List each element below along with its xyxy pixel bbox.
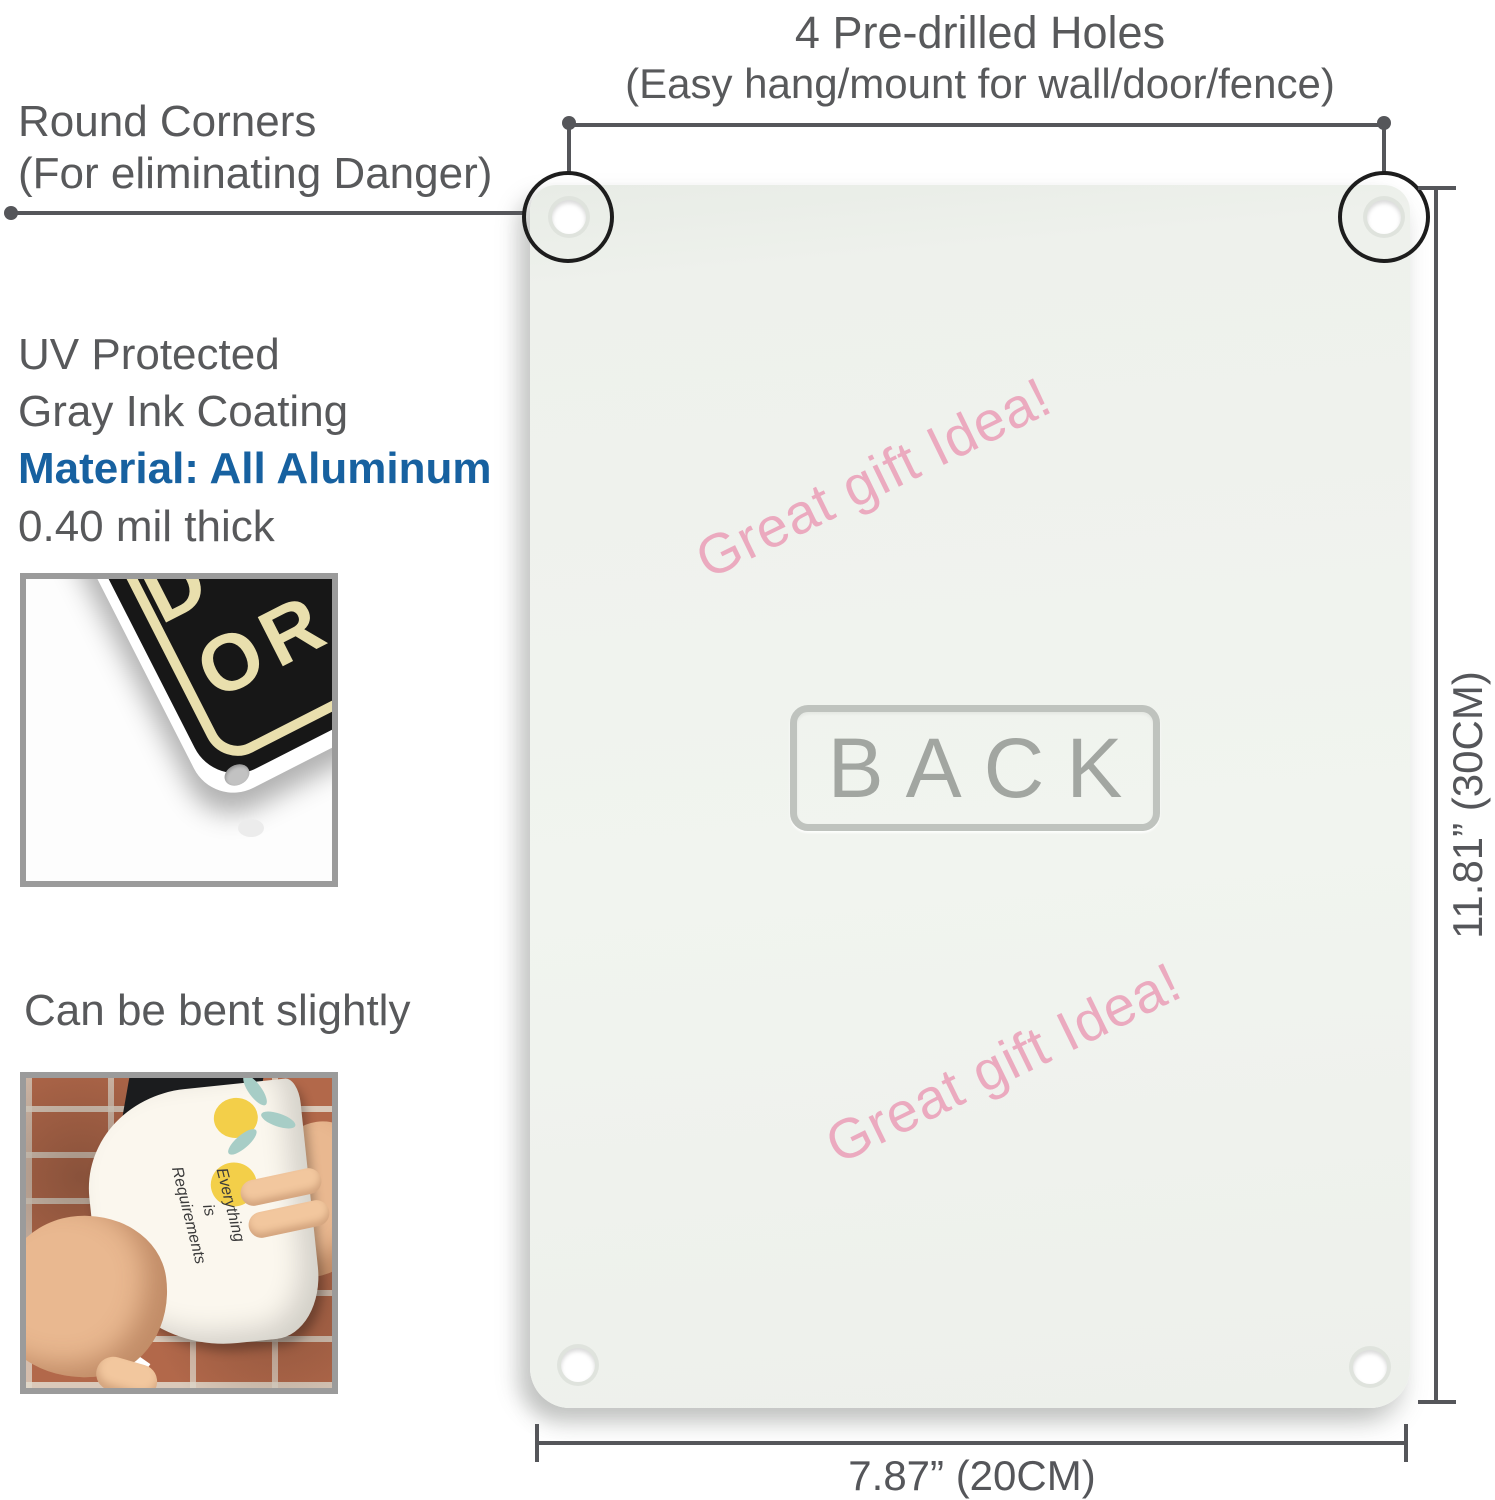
round-corner-pointer-line	[10, 211, 523, 215]
predrilled-holes-subtitle: (Easy hang/mount for wall/door/fence)	[500, 59, 1460, 109]
round-corners-title: Round Corners	[18, 96, 492, 148]
drilled-hole-reflection	[238, 819, 264, 837]
watermark-top: Great gift Idea!	[685, 364, 1061, 592]
bend-demo-photo: Everything is Requirements	[20, 1072, 338, 1394]
gray-ink-line: Gray Ink Coating	[18, 383, 491, 440]
black-sign-corner: D OR R	[20, 573, 338, 789]
top-bracket-drop-left	[567, 127, 571, 173]
height-dimension-label: 11.81” (30CM)	[1444, 671, 1492, 939]
uv-protected-line: UV Protected	[18, 326, 491, 383]
watermark-bottom: Great gift Idea!	[815, 949, 1191, 1177]
material-line: Material: All Aluminum	[18, 440, 491, 497]
brick-wall-background: Everything is Requirements	[26, 1078, 332, 1388]
leaf-illustration	[259, 1108, 297, 1132]
sign-panel-back: Great gift Idea! Great gift Idea! BACK	[530, 185, 1410, 1408]
handwritten-text: Everything is Requirements	[159, 1130, 258, 1291]
corner-closeup-photo: D OR R	[20, 573, 338, 887]
thickness-line: 0.40 mil thick	[18, 498, 491, 555]
corner-highlight-ring-right	[1338, 171, 1430, 263]
panel-hole-bottom-left	[561, 1348, 595, 1382]
top-bracket-drop-right	[1382, 127, 1386, 173]
round-corners-subtitle: (For eliminating Danger)	[18, 148, 492, 200]
predrilled-holes-caption: 4 Pre-drilled Holes (Easy hang/mount for…	[500, 6, 1460, 109]
corner-highlight-ring-left	[522, 171, 614, 263]
panel-hole-bottom-right	[1353, 1350, 1387, 1384]
height-dimension-line	[1434, 188, 1438, 1404]
height-dimension-cap-bottom	[1418, 1400, 1456, 1404]
back-stamp: BACK	[790, 705, 1160, 831]
left-thumb	[92, 1353, 161, 1394]
infographic-canvas: Great gift Idea! Great gift Idea! BACK 4…	[0, 0, 1495, 1500]
predrilled-holes-title: 4 Pre-drilled Holes	[500, 6, 1460, 59]
round-corners-caption: Round Corners (For eliminating Danger)	[18, 96, 492, 200]
width-dimension-label: 7.87” (20CM)	[537, 1452, 1407, 1500]
bend-caption: Can be bent slightly	[24, 986, 410, 1036]
material-caption: UV Protected Gray Ink Coating Material: …	[18, 326, 491, 555]
width-dimension-line	[537, 1441, 1407, 1445]
top-bracket-line	[569, 123, 1384, 127]
